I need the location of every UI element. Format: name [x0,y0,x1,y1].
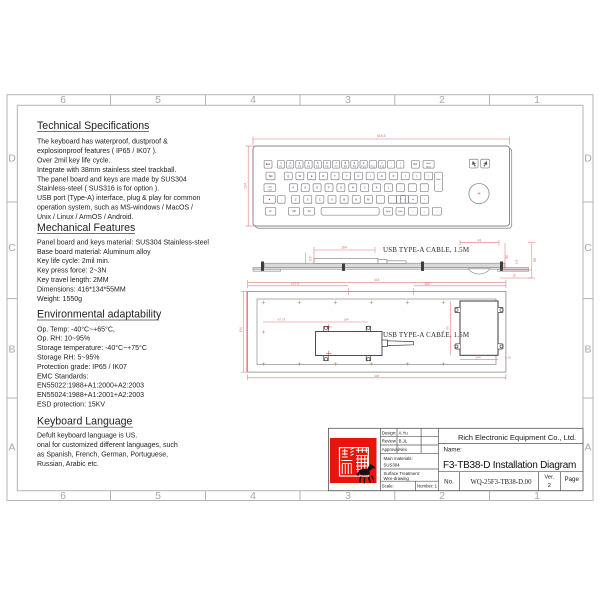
svg-text:O: O [381,174,383,178]
svg-text:explosionproof features ( IP65: explosionproof features ( IP65 / IK07 ). [37,148,157,155]
svg-text:-: - [372,162,373,165]
svg-text:Storage temperature: -40°C~+75: Storage temperature: -40°C~+75°C [37,344,147,352]
svg-text:`: ` [424,186,425,190]
svg-text:Stainless-steel ( SUS316 is fo: Stainless-steel ( SUS316 is for option )… [37,186,159,193]
svg-text:Mechanical Features: Mechanical Features [37,222,135,234]
svg-text:F11: F11 [371,165,376,169]
svg-text:EN55024:1988+A1:2001+A2:2003: EN55024:1988+A1:2001+A2:2003 [37,392,144,399]
svg-text:Review: Review [382,439,397,444]
svg-text:2: 2 [548,483,551,489]
svg-text:1: 1 [534,490,540,502]
svg-text:Back: Back [426,163,430,165]
svg-text:Y: Y [346,174,348,178]
svg-text:134: 134 [239,327,243,333]
svg-text:Rich Electronic Equipment Co.,: Rich Electronic Equipment Co., Ltd. [458,433,576,442]
svg-text:Keyboard Language: Keyboard Language [37,416,133,428]
svg-text:←: ← [437,183,440,186]
svg-text:R: R [322,174,324,178]
svg-text:5.15: 5.15 [505,356,511,360]
svg-text:H: H [352,186,354,190]
svg-text:Page: Page [564,476,579,483]
svg-text:F12: F12 [380,165,385,169]
svg-text:147.5: 147.5 [291,282,299,286]
svg-text:134: 134 [244,183,248,189]
svg-text:C: C [584,242,592,254]
svg-text:B: B [584,344,591,356]
svg-text:Key press force: 2~3N: Key press force: 2~3N [37,268,106,275]
svg-text:Alt: Alt [308,210,311,213]
svg-text:Panel board and keys material:: Panel board and keys material: SUS304 St… [37,239,209,246]
svg-text:1: 1 [534,94,540,106]
svg-text:WQ-25F3-TB38-D.00: WQ-25F3-TB38-D.00 [471,479,533,486]
svg-text:Integrate with 38mm stainless: Integrate with 38mm stainless steel trac… [37,167,176,174]
svg-text:Key life cycle: 2mil min.: Key life cycle: 2mil min. [37,258,110,265]
svg-text:Base board material: Aluminum: Base board material: Aluminum alloy [37,249,151,256]
svg-text:USB TYPE-A CABLE, 1.5M: USB TYPE-A CABLE, 1.5M [383,331,470,339]
svg-text:Protection grade: IP65 / IK07: Protection grade: IP65 / IK07 [37,364,127,371]
svg-text:Enter: Enter [436,178,441,181]
svg-text:Dimensions: 416*134*55MM: Dimensions: 416*134*55MM [37,286,126,293]
svg-text:164: 164 [341,246,347,250]
svg-text:Tab: Tab [268,175,273,178]
svg-text:Key travel length: 2MM: Key travel length: 2MM [37,277,109,284]
svg-text:The panel board and keys are m: The panel board and keys are made by SUS… [37,176,187,183]
svg-text:2: 2 [439,490,445,502]
svg-text:6: 6 [60,94,66,106]
svg-text:W: W [299,174,302,178]
svg-text:G: G [340,186,342,190]
svg-text:→: → [435,209,438,213]
svg-text:184: 184 [343,318,348,322]
svg-text:4.5: 4.5 [515,260,519,265]
svg-text:406: 406 [374,374,379,378]
svg-text:S: S [304,186,306,190]
svg-text:Op. RH: 10~95%: Op. RH: 10~95% [37,336,90,343]
svg-text:Lock: Lock [268,190,272,192]
svg-text:41: 41 [478,238,482,242]
svg-text:Caps: Caps [268,186,272,188]
svg-text:Del: Del [413,163,417,166]
svg-text:Storage RH: 5~95%: Storage RH: 5~95% [37,355,99,362]
svg-text:EN55022:1988+A1:2000+A2:2003: EN55022:1988+A1:2000+A2:2003 [37,383,144,390]
svg-text:PgUp: PgUp [386,211,391,213]
svg-text:416.5: 416.5 [377,134,386,138]
svg-text:Op. Temp: -40°C~+65°C,: Op. Temp: -40°C~+65°C, [37,325,115,333]
svg-text:A: A [584,442,591,454]
svg-text:Over 2mil key life cycle.: Over 2mil key life cycle. [37,158,111,165]
svg-text:55: 55 [533,258,537,262]
svg-text:144: 144 [475,356,480,360]
svg-text:▲: ▲ [412,198,414,201]
svg-text:Design:: Design: [382,430,397,435]
svg-text:▲: ▲ [268,198,270,201]
svg-text:3: 3 [345,490,351,502]
svg-text:X: X [307,197,309,201]
svg-text:Number: 1: Number: 1 [417,484,438,489]
svg-text:Ctrl: Ctrl [292,210,296,213]
svg-text:No.: No. [444,479,454,486]
svg-text:416: 416 [374,278,380,282]
svg-text:Alex: Alex [399,447,408,452]
svg-text:Esc: Esc [266,162,271,166]
svg-text:6: 6 [60,490,66,502]
svg-text:USB port (Type-A) interface, p: USB port (Type-A) interface, plug & play… [37,195,201,202]
svg-text:B: B [8,344,15,356]
svg-text:4: 4 [250,490,256,502]
svg-text:Space: Space [426,166,431,168]
svg-text:K: K [376,186,378,190]
svg-text:Technical Specifications: Technical Specifications [37,120,149,132]
svg-text:D: D [584,153,592,165]
svg-text:Weight: 1550g: Weight: 1550g [37,296,82,303]
svg-text:5: 5 [155,490,161,502]
svg-text:A.Yu: A.Yu [399,430,409,435]
svg-text:Scale:: Scale: [382,484,394,489]
svg-text:30: 30 [505,255,509,259]
svg-text:Main materials:: Main materials: [384,456,413,461]
svg-text:4: 4 [250,94,256,106]
svg-text:EMC Standards:: EMC Standards: [37,373,88,380]
svg-text:162: 162 [424,282,430,286]
svg-text:B.JL: B.JL [399,439,408,444]
svg-text:SUS304: SUS304 [384,463,401,468]
svg-text:PgDn: PgDn [398,211,403,213]
svg-text:C: C [319,197,321,201]
svg-text:U: U [357,174,359,178]
svg-text:The keyboard has waterproof, d: The keyboard has waterproof, dustproof & [37,139,168,146]
svg-text:3: 3 [345,94,351,106]
svg-text:N: N [355,197,357,201]
svg-text:Defult keyboard language is US: Defult keyboard language is US. [37,433,137,440]
svg-text:`: ` [391,161,392,165]
svg-text:Environmental adaptability: Environmental adaptability [37,309,162,321]
svg-text:5: 5 [155,94,161,106]
svg-text:88: 88 [446,326,450,330]
svg-text:B: B [343,197,345,201]
svg-text:F10: F10 [361,165,366,169]
svg-text:ESD protection: 15KV: ESD protection: 15KV [37,402,105,409]
svg-text:V: V [331,197,333,201]
svg-text:D: D [316,186,318,190]
svg-text:Russian, Arabic etc.: Russian, Arabic etc. [37,461,99,468]
svg-text:A: A [292,186,294,190]
svg-text:USB TYPE-A CABLE, 1.5M: USB TYPE-A CABLE, 1.5M [383,246,470,254]
svg-text:Unix / Linux / ArmOS / Android: Unix / Linux / ArmOS / Android. [37,214,134,221]
svg-text:onal for customized different: onal for customized different languages,… [37,442,178,449]
svg-text:←: ← [411,209,414,213]
svg-text:8.5: 8.5 [308,256,312,261]
svg-text:E: E [311,174,313,178]
svg-text:2: 2 [439,94,445,106]
svg-text:P: P [393,174,395,178]
svg-text:D: D [8,153,16,165]
svg-text:C: C [8,242,16,254]
svg-text:Ver.: Ver. [544,475,554,481]
svg-text:operation system, such as MS-w: operation system, such as MS-windows / M… [37,205,193,212]
svg-text:F3-TB38-D Installation Diagram: F3-TB38-D Installation Diagram [443,460,576,471]
svg-text:Wire-drawing: Wire-drawing [384,476,410,481]
svg-text:12: 12 [512,274,516,278]
svg-text:as Spanish, French, German, Po: as Spanish, French, German, Portuguese, [37,451,168,458]
svg-text:Q: Q [287,174,289,178]
svg-text:Name:: Name: [444,447,463,454]
svg-text:A: A [8,442,15,454]
svg-text:-67.75: -67.75 [277,318,286,322]
svg-text:Approval: Approval [382,447,399,452]
